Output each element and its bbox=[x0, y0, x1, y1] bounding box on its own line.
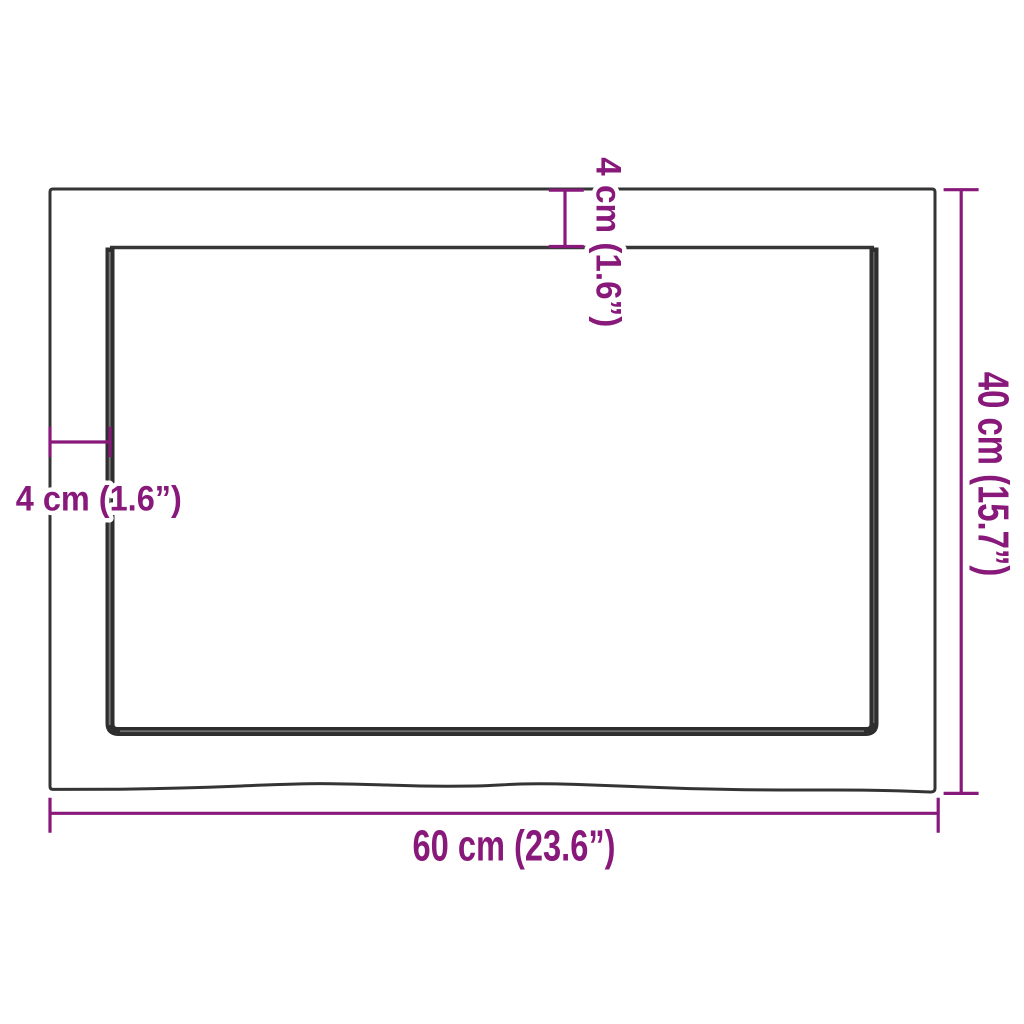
svg-text:4 cm (1.6”): 4 cm (1.6”) bbox=[16, 479, 182, 518]
svg-text:40 cm (15.7”): 40 cm (15.7”) bbox=[968, 372, 1017, 577]
svg-text:60 cm (23.6”): 60 cm (23.6”) bbox=[413, 822, 616, 871]
svg-text:4 cm (1.6”): 4 cm (1.6”) bbox=[588, 157, 627, 327]
